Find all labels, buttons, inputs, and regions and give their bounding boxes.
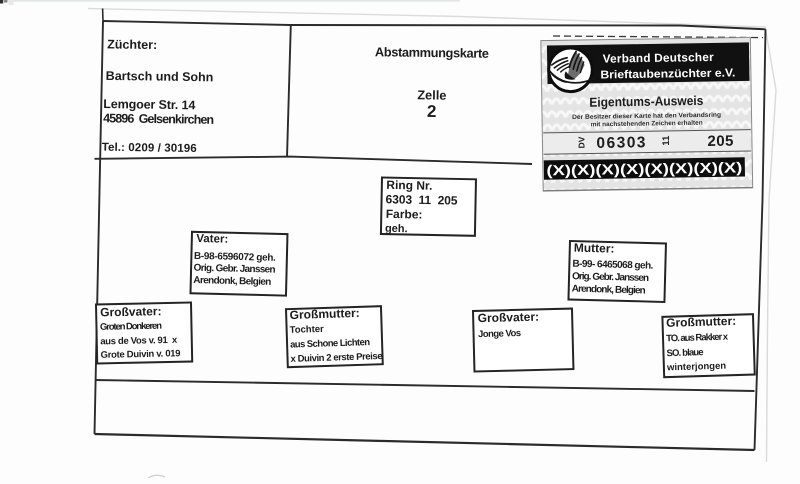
svg-text:11: 11 [661, 135, 672, 146]
svg-text:Vater:: Vater: [196, 233, 228, 246]
svg-text:Orig. Gebr. Janssen: Orig. Gebr. Janssen [193, 263, 275, 276]
svg-text:45896 Gelsenkirchen: 45896 Gelsenkirchen [103, 111, 214, 127]
svg-text:Grote Duivin v. 019: Grote Duivin v. 019 [100, 348, 180, 361]
svg-text:Brieftaubenzüchter e.V.: Brieftaubenzüchter e.V. [600, 67, 735, 81]
svg-text:Großvater:: Großvater: [478, 310, 540, 325]
svg-text:(X)(X)(X)(X)(X)(X)(X)(X): (X)(X)(X)(X)(X)(X)(X)(X) [546, 160, 742, 179]
svg-text:Großmutter:: Großmutter: [666, 314, 736, 330]
svg-text:6303 11 205: 6303 11 205 [385, 192, 458, 207]
svg-text:DV: DV [576, 136, 586, 148]
svg-text:aus de Vos v. 91 x: aus de Vos v. 91 x [100, 335, 178, 348]
svg-text:TO. aus Rakker x: TO. aus Rakker x [666, 332, 729, 345]
svg-text:2: 2 [427, 102, 437, 121]
svg-text:Eigentums-Ausweis: Eigentums-Ausweis [589, 93, 703, 110]
svg-text:Ring Nr.: Ring Nr. [386, 178, 432, 193]
svg-text:Abstammungskarte: Abstammungskarte [375, 44, 489, 61]
svg-text:B-98-6596072 geh.: B-98-6596072 geh. [194, 251, 276, 264]
svg-text:Großmutter:: Großmutter: [289, 306, 359, 322]
svg-text:Zelle: Zelle [417, 87, 446, 102]
svg-text:Mutter:: Mutter: [574, 241, 615, 256]
svg-text:Groten Donkeren: Groten Donkeren [100, 321, 162, 333]
svg-text:Arendonk, Belgien: Arendonk, Belgien [572, 284, 646, 297]
svg-text:Arendonk, Belgien: Arendonk, Belgien [193, 275, 271, 288]
svg-text:geh.: geh. [385, 223, 408, 235]
svg-text:Bartsch und Sohn: Bartsch und Sohn [106, 69, 214, 85]
svg-text:Züchter:: Züchter: [107, 37, 157, 52]
svg-text:Tochter: Tochter [289, 324, 324, 336]
svg-text:Jonge Vos: Jonge Vos [478, 328, 521, 340]
svg-text:winterjongen: winterjongen [666, 361, 727, 374]
svg-text:06303: 06303 [596, 134, 646, 152]
svg-text:205: 205 [707, 133, 733, 150]
svg-text:Orig. Gebr. Janssen: Orig. Gebr. Janssen [572, 271, 649, 284]
svg-text:Großvater:: Großvater: [100, 304, 162, 319]
svg-text:Verband Deutscher: Verband Deutscher [603, 50, 715, 66]
svg-text:B-99- 6465068 geh.: B-99- 6465068 geh. [572, 259, 653, 272]
svg-text:Tel.: 0209 / 30196: Tel.: 0209 / 30196 [102, 142, 197, 155]
svg-text:SO. blaue: SO. blaue [666, 347, 703, 359]
svg-text:Farbe:: Farbe: [386, 207, 423, 222]
svg-text:Lemgoer Str. 14: Lemgoer Str. 14 [103, 97, 195, 112]
